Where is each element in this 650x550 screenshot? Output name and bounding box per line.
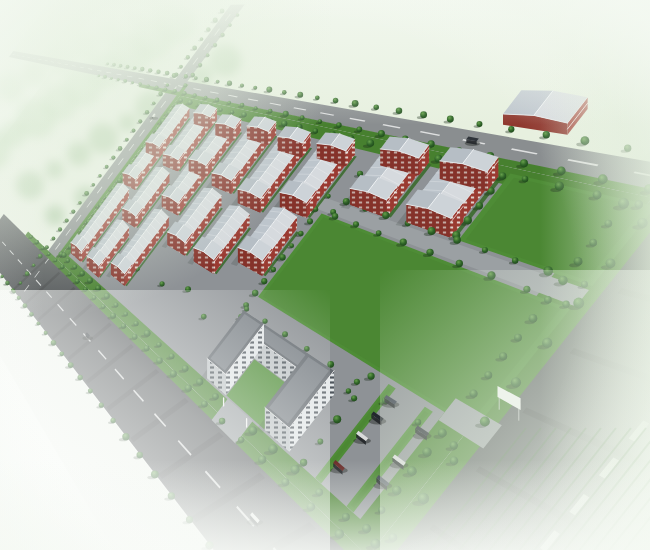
aerial-industrial-park-rendering <box>0 0 650 550</box>
scene-canvas <box>0 0 650 550</box>
mist-overlay <box>0 0 650 550</box>
mist-layer <box>0 0 650 550</box>
